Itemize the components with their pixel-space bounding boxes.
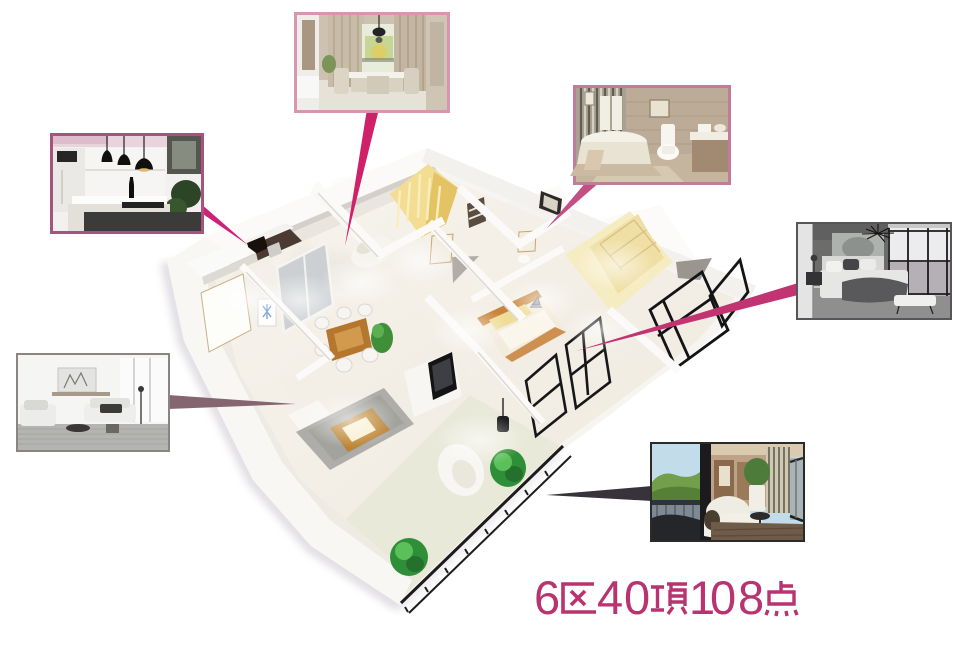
svg-text:4: 4: [597, 571, 623, 624]
svg-text:6: 6: [534, 571, 560, 624]
svg-text:0: 0: [624, 571, 650, 624]
svg-text:8: 8: [738, 571, 764, 624]
svg-text:0: 0: [710, 571, 736, 624]
